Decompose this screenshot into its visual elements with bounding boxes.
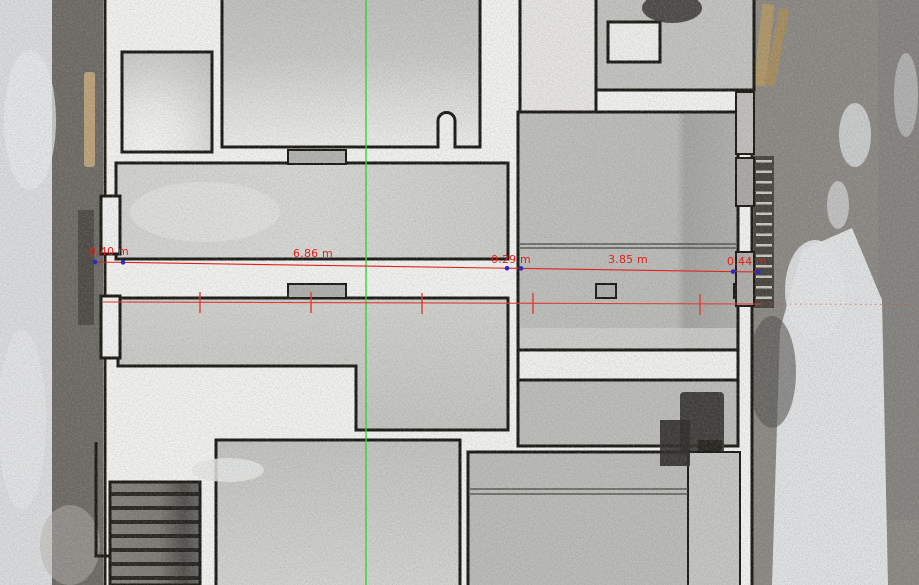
pointcloud-viewport[interactable]: 0.40 m 6.86 m 0.29 m 3.85 m 0.44 m [0, 0, 919, 585]
pointcloud-scene [0, 0, 919, 585]
measurement-label-4: 3.85 m [608, 254, 648, 266]
scan-noise-light [0, 0, 919, 585]
measurement-label-1: 0.40 m [89, 246, 129, 258]
measurement-label-3: 0.29 m [491, 254, 531, 266]
measurement-label-2: 6.86 m [293, 248, 333, 260]
measurement-label-5: 0.44 m [727, 256, 767, 268]
